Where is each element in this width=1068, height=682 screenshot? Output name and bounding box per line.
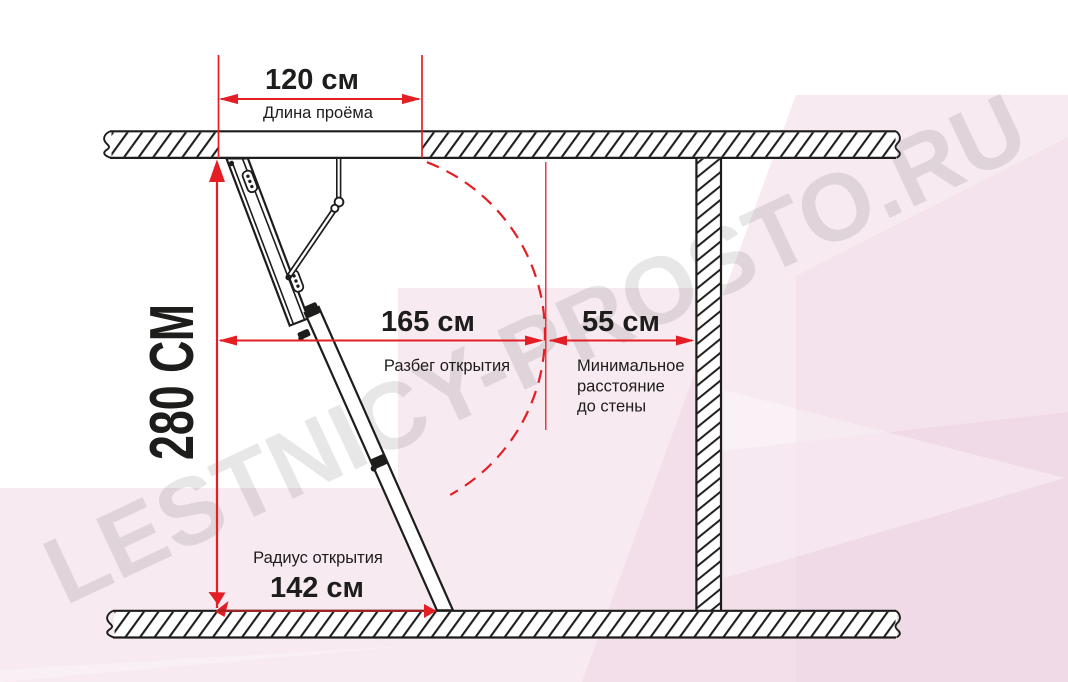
svg-text:55 см: 55 см: [582, 306, 660, 338]
svg-text:280 СМ: 280 СМ: [138, 304, 207, 460]
svg-text:120 см: 120 см: [265, 64, 359, 96]
svg-text:расстояние: расстояние: [577, 378, 665, 396]
svg-text:Разбег открытия: Разбег открытия: [384, 357, 510, 375]
svg-text:Минимальное: Минимальное: [577, 357, 685, 375]
svg-text:до стены: до стены: [577, 398, 646, 416]
svg-text:Длина проёма: Длина проёма: [263, 104, 374, 122]
svg-text:142 см: 142 см: [270, 572, 364, 604]
svg-text:Радиус открытия: Радиус открытия: [253, 549, 383, 567]
svg-text:165 см: 165 см: [381, 306, 475, 338]
